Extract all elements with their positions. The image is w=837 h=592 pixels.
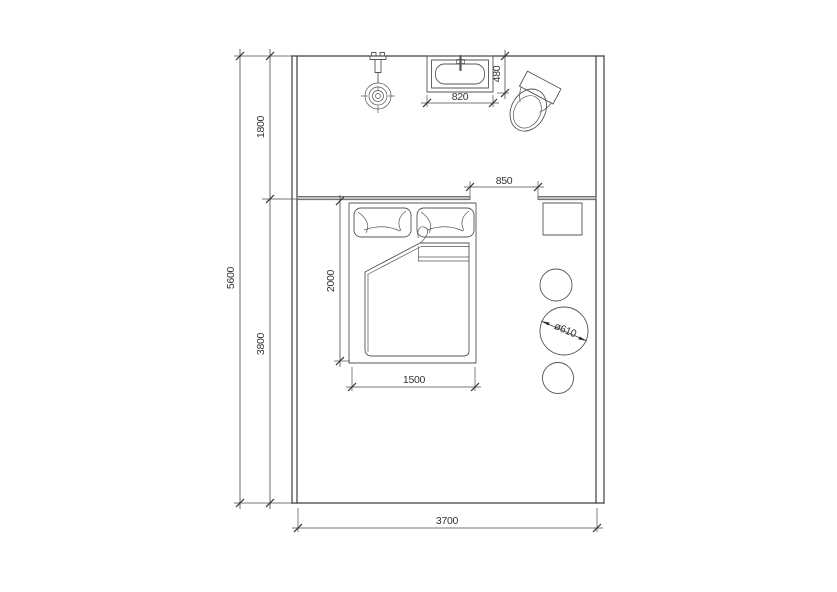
blanket [365,227,469,356]
dim-label-lower-zone: 3800 [255,332,267,355]
dim-label-opening: 850 [496,175,513,187]
dim-label-table-diameter: ø610 [552,320,578,340]
dimension-ticks [236,52,601,532]
stool-lower [543,363,574,394]
pillow-left [354,208,411,237]
toilet [501,71,561,138]
double-bed [349,203,476,363]
partition-right-segment [538,197,596,200]
floor-plan-canvas: 5600 1800 3800 3700 850 820 480 2000 150… [0,0,837,592]
dim-label-total-depth: 5600 [225,266,237,289]
wash-basin [427,56,493,92]
dim-label-bed-width: 1500 [403,374,426,386]
dimension-annotations: 5600 1800 3800 3700 850 820 480 2000 150… [225,49,603,532]
partition-left-segment [297,197,470,200]
pillow-right [417,208,474,237]
floor-plan-svg: 5600 1800 3800 3700 850 820 480 2000 150… [0,0,837,592]
dim-label-bed-length: 2000 [325,269,337,292]
side-table [543,203,582,235]
dim-label-upper-zone: 1800 [255,115,267,138]
walls [292,56,604,503]
dim-label-room-width: 3700 [436,515,459,527]
dim-label-basin-width: 820 [452,91,469,103]
stool-upper [540,269,572,301]
shower-head [361,53,395,114]
